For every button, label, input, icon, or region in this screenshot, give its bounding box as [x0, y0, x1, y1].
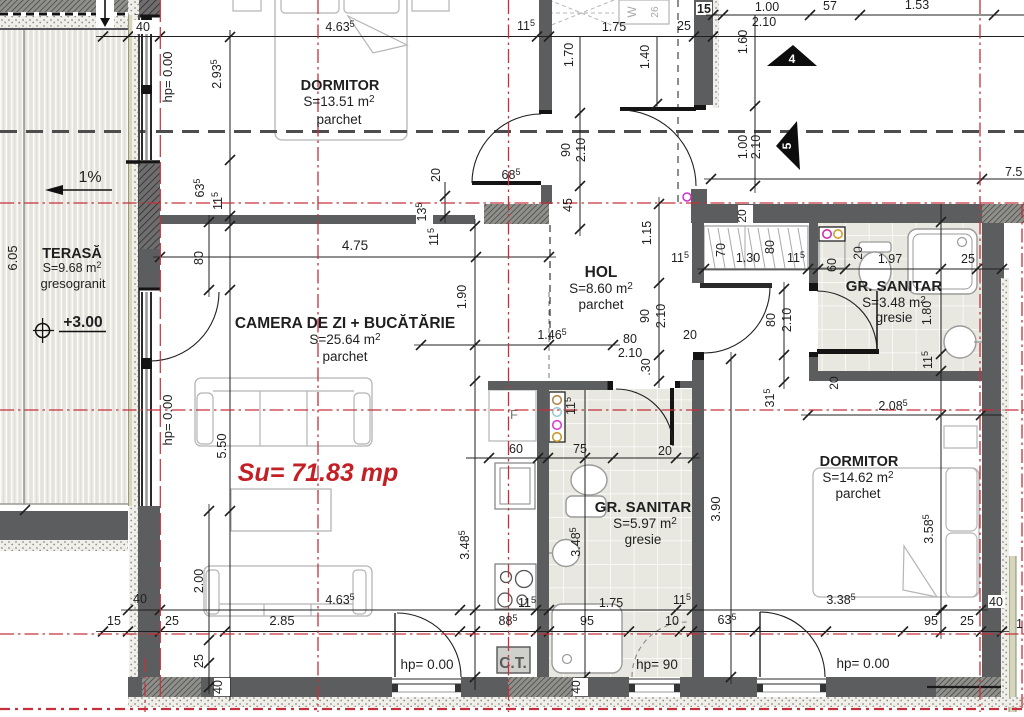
svg-text:75: 75	[573, 442, 587, 456]
svg-text:F: F	[510, 407, 518, 422]
svg-text:1.30: 1.30	[736, 251, 760, 265]
svg-text:25: 25	[165, 614, 179, 628]
svg-text:parchet: parchet	[322, 349, 367, 364]
svg-text:57: 57	[823, 0, 837, 13]
svg-text:Su= 71.83 mp: Su= 71.83 mp	[238, 459, 399, 487]
svg-text:80: 80	[192, 251, 206, 265]
svg-text:26: 26	[650, 6, 661, 18]
svg-text:1: 1	[1016, 617, 1023, 631]
svg-text:2.85: 2.85	[269, 613, 294, 628]
svg-text:40: 40	[136, 20, 150, 34]
svg-text:S=25.64 m2: S=25.64 m2	[309, 332, 381, 347]
svg-text:gresie: gresie	[625, 532, 662, 547]
svg-text:80: 80	[623, 332, 637, 346]
svg-text:10: 10	[665, 614, 679, 628]
svg-text:C.T.: C.T.	[499, 655, 527, 672]
svg-text:95: 95	[924, 614, 938, 628]
svg-text:15: 15	[107, 614, 121, 628]
svg-text:1.75: 1.75	[602, 20, 626, 34]
svg-text:HOL: HOL	[585, 264, 618, 281]
svg-text:1.40: 1.40	[638, 45, 652, 69]
svg-text:1.75: 1.75	[599, 596, 623, 610]
svg-text:7.5: 7.5	[1005, 165, 1022, 179]
svg-text:20: 20	[851, 246, 865, 260]
svg-text:.30: .30	[639, 358, 653, 375]
svg-text:20: 20	[658, 444, 672, 458]
svg-text:20: 20	[683, 328, 697, 342]
svg-text:gresogranit: gresogranit	[40, 276, 105, 291]
svg-text:40: 40	[133, 592, 147, 606]
svg-text:5.50: 5.50	[214, 433, 229, 458]
svg-text:20: 20	[429, 168, 443, 182]
svg-text:60: 60	[509, 442, 523, 456]
svg-text:2.10: 2.10	[574, 138, 588, 162]
svg-text:S=3.48 m2: S=3.48 m2	[862, 295, 926, 310]
svg-text:2.10: 2.10	[752, 15, 776, 29]
svg-text:DORMITOR: DORMITOR	[820, 454, 899, 470]
svg-text:hp= 0.00: hp= 0.00	[837, 656, 890, 671]
svg-text:2.10: 2.10	[654, 304, 668, 328]
svg-text:1%: 1%	[78, 169, 101, 186]
svg-text:1.53: 1.53	[905, 0, 929, 12]
svg-text:1.80: 1.80	[920, 301, 934, 325]
svg-text:2.00: 2.00	[192, 569, 206, 593]
svg-text:6.05: 6.05	[5, 245, 20, 270]
svg-text:3.90: 3.90	[708, 496, 723, 521]
svg-text:15: 15	[697, 2, 711, 16]
svg-text:1.70: 1.70	[562, 43, 576, 67]
svg-text:gresie: gresie	[876, 310, 913, 325]
svg-text:20: 20	[827, 376, 841, 390]
svg-text:W: W	[625, 6, 639, 18]
svg-text:25: 25	[192, 654, 206, 668]
svg-text:1.00: 1.00	[736, 135, 750, 159]
svg-text:1.60: 1.60	[736, 30, 750, 54]
svg-text:90: 90	[638, 309, 652, 323]
svg-text:25: 25	[960, 614, 974, 628]
svg-text:60: 60	[825, 258, 839, 272]
svg-text:S=13.51 m2: S=13.51 m2	[303, 94, 375, 109]
svg-text:S=5.97 m2: S=5.97 m2	[613, 516, 677, 531]
svg-text:parchet: parchet	[835, 486, 880, 501]
svg-text:40: 40	[989, 595, 1003, 609]
svg-text:GR. SANITAR: GR. SANITAR	[846, 278, 943, 295]
svg-text:hp= 0.00: hp= 0.00	[160, 52, 175, 103]
svg-text:S=9.68 m2: S=9.68 m2	[43, 260, 102, 275]
svg-text:90: 90	[559, 143, 573, 157]
svg-text:hp= 90: hp= 90	[636, 657, 678, 672]
svg-text:+3.00: +3.00	[63, 314, 102, 331]
svg-text:CAMERA DE ZI + BUCĂTĂRIE: CAMERA DE ZI + BUCĂTĂRIE	[235, 315, 455, 332]
svg-text:25: 25	[961, 252, 975, 266]
svg-text:GR. SANITAR: GR. SANITAR	[595, 499, 692, 516]
svg-text:2.10: 2.10	[780, 308, 794, 332]
svg-text:95: 95	[580, 614, 594, 628]
svg-text:2.10: 2.10	[749, 135, 763, 159]
svg-text:hp= 0.00: hp= 0.00	[401, 657, 454, 672]
svg-text:1.97: 1.97	[878, 252, 902, 266]
svg-text:S=8.60 m2: S=8.60 m2	[569, 281, 633, 296]
svg-text:parchet: parchet	[316, 112, 361, 127]
svg-text:2.10: 2.10	[618, 346, 642, 360]
svg-text:TERASĂ: TERASĂ	[42, 245, 102, 262]
svg-text:80: 80	[763, 240, 777, 254]
svg-text:parchet: parchet	[578, 297, 623, 312]
svg-text:DORMITOR: DORMITOR	[301, 78, 380, 94]
svg-text:70: 70	[714, 243, 728, 257]
svg-text:S=14.62 m2: S=14.62 m2	[822, 470, 894, 485]
svg-text:80: 80	[764, 313, 778, 327]
svg-text:1.15: 1.15	[640, 221, 654, 245]
svg-text:5: 5	[780, 142, 794, 149]
svg-text:40: 40	[211, 680, 225, 694]
svg-text:40: 40	[569, 680, 583, 694]
svg-text:1.90: 1.90	[455, 285, 469, 309]
svg-text:hp= 0.00: hp= 0.00	[160, 395, 175, 446]
svg-text:20: 20	[735, 209, 749, 223]
svg-text:1.00: 1.00	[755, 0, 779, 14]
svg-text:4: 4	[789, 52, 796, 66]
svg-text:4.75: 4.75	[342, 238, 368, 253]
svg-text:25: 25	[677, 19, 691, 33]
svg-text:45: 45	[561, 198, 575, 212]
